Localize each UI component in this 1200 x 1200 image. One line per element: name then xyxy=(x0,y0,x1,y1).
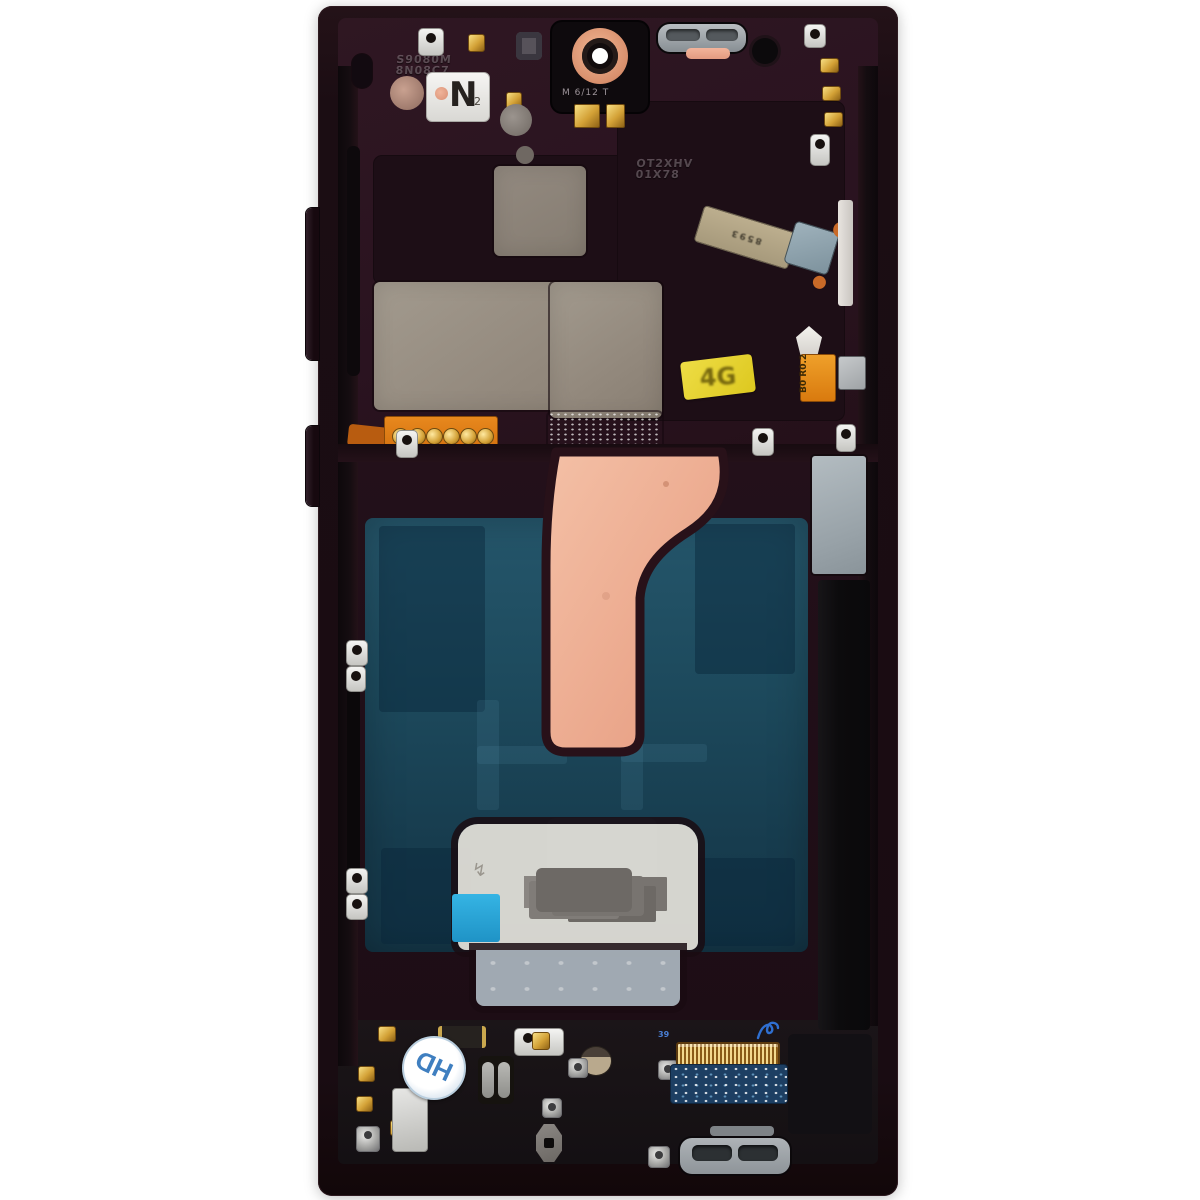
frost-label-lower xyxy=(476,950,680,1006)
camera-housing-marking: M 6/12 T xyxy=(562,88,609,98)
sticker-dot xyxy=(435,87,448,100)
gold-contact xyxy=(356,1096,373,1112)
antenna-spring-contact xyxy=(820,58,839,73)
nfc-sticker: N 2 xyxy=(426,72,490,122)
diagonal-flex-body: 8593 xyxy=(693,205,798,270)
round-sensor-pad xyxy=(500,104,532,136)
bracket-strip-white xyxy=(838,200,853,306)
antenna-spring-contact xyxy=(822,86,841,101)
screw xyxy=(568,1058,588,1078)
hd-sticker: HD xyxy=(402,1036,466,1100)
top-left-port-hole xyxy=(352,54,372,88)
screw-tab xyxy=(836,424,856,452)
sticker-4g: 4G xyxy=(680,354,756,400)
product-photo-canvas: S9080M 8N08C7 N 2 M 6/12 T OT2XHV xyxy=(0,0,1200,1200)
earpiece-slot-seal xyxy=(686,48,730,59)
screw xyxy=(542,1098,562,1118)
gold-pad xyxy=(606,104,625,128)
screw-tab xyxy=(804,24,826,48)
gold-contact xyxy=(532,1032,550,1050)
power-button xyxy=(306,426,319,506)
label-smudged-print xyxy=(536,868,632,912)
gold-contact xyxy=(358,1066,375,1082)
proximity-sensor-hole xyxy=(752,38,778,64)
adhesive-dot xyxy=(390,76,424,110)
silver-block xyxy=(838,356,866,390)
screw xyxy=(648,1146,670,1168)
screw-tab xyxy=(346,894,368,920)
antenna-pad-grey xyxy=(812,456,866,574)
camera-ring-copper xyxy=(572,28,628,84)
bracket-white xyxy=(810,134,830,166)
sensor-grommet xyxy=(516,32,542,60)
front-camera-housing: M 6/12 T xyxy=(552,22,648,112)
orange-chip: B0 R0.2 xyxy=(800,354,836,402)
blue-pull-tab xyxy=(452,894,500,942)
camera-barrel xyxy=(582,38,618,74)
embossed-code-center: OT2XHV 01X78 xyxy=(635,158,693,180)
gold-contact xyxy=(468,34,485,52)
thermal-plate-extension xyxy=(550,282,662,418)
screw-tab xyxy=(346,868,368,894)
gold-contact xyxy=(378,1026,396,1042)
screw-tab xyxy=(418,28,444,56)
volume-button xyxy=(306,208,319,360)
diagonal-flex-pad xyxy=(783,220,840,276)
screw xyxy=(356,1126,380,1152)
shield-plate-small xyxy=(494,166,586,256)
antenna-spring-contact xyxy=(824,112,843,127)
left-rail-slot-upper xyxy=(347,146,360,376)
left-rail-slot xyxy=(347,674,360,876)
gasket-tab xyxy=(710,1126,774,1136)
frame-block-dark xyxy=(788,1034,872,1134)
blue-ink-mark xyxy=(754,1018,782,1044)
glitter-flex-cable xyxy=(670,1064,788,1104)
copper-heat-flex xyxy=(516,446,806,776)
flex-solder-dot xyxy=(811,274,827,290)
nfc-subscript: 2 xyxy=(474,95,481,108)
label-scribble: ↯ xyxy=(472,860,502,886)
screw-tab xyxy=(346,666,366,692)
connector-index-mark: 39 xyxy=(658,1030,669,1039)
camera-aperture xyxy=(592,48,608,64)
round-sensor-pad-small xyxy=(516,146,534,164)
phone-midframe-assembly: S9080M 8N08C7 N 2 M 6/12 T OT2XHV xyxy=(318,6,898,1196)
screw-tab xyxy=(346,640,368,666)
gold-pad xyxy=(574,104,600,128)
grommet-housing xyxy=(478,1056,514,1104)
screw-tab xyxy=(396,430,418,458)
diagonal-flex-code: 8593 xyxy=(695,206,797,267)
loudspeaker-gasket xyxy=(680,1138,790,1174)
antenna-strip-black xyxy=(818,580,870,1030)
